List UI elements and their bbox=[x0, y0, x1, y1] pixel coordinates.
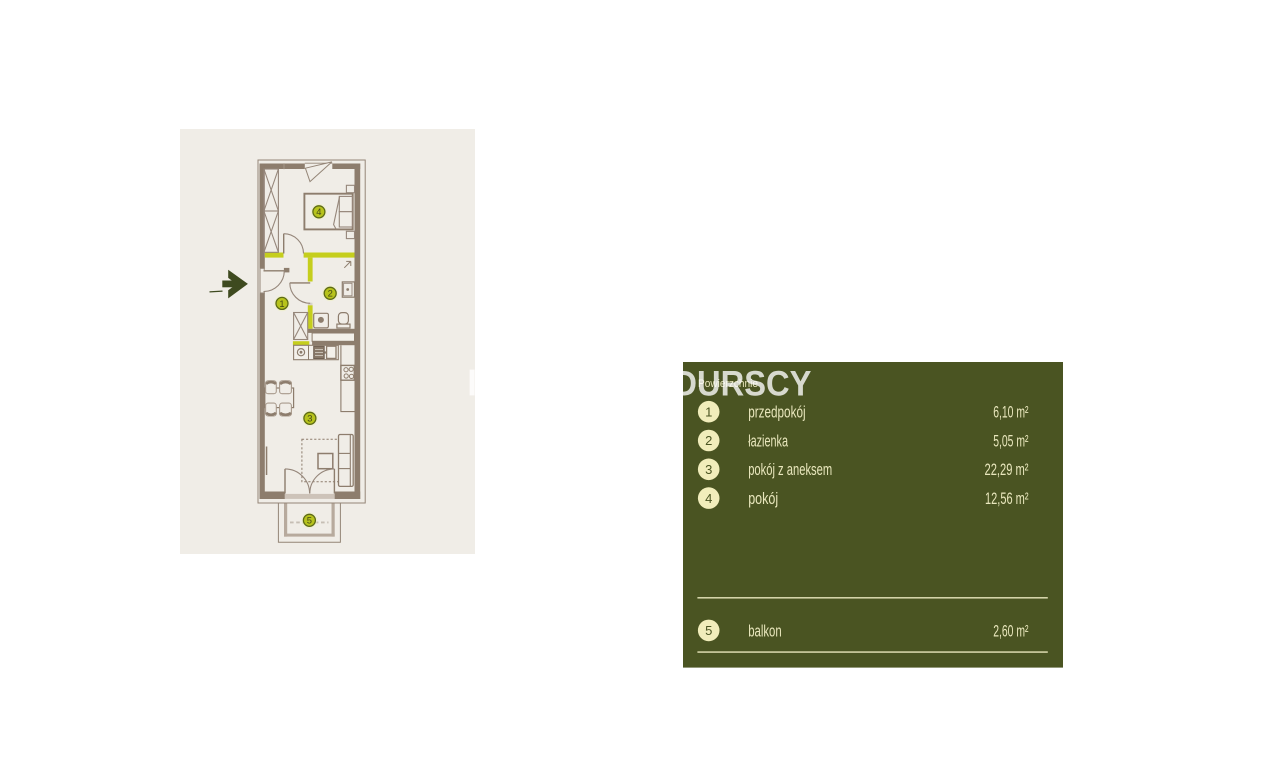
svg-text:5: 5 bbox=[705, 623, 712, 638]
svg-text:3: 3 bbox=[705, 462, 712, 477]
svg-text:pokój: pokój bbox=[748, 490, 778, 508]
svg-text:5: 5 bbox=[307, 515, 312, 526]
svg-text:4: 4 bbox=[705, 491, 712, 506]
svg-text:1: 1 bbox=[279, 298, 284, 309]
svg-text:balkon: balkon bbox=[748, 622, 782, 640]
svg-text:1: 1 bbox=[705, 404, 712, 419]
svg-text:6,10 m²: 6,10 m² bbox=[993, 404, 1029, 422]
svg-text:5,05 m²: 5,05 m² bbox=[993, 432, 1029, 450]
svg-text:22,29 m²: 22,29 m² bbox=[985, 461, 1029, 479]
svg-text:pokój z aneksem: pokój z aneksem bbox=[748, 461, 832, 479]
svg-text:2: 2 bbox=[705, 433, 712, 448]
svg-text:2: 2 bbox=[328, 287, 333, 298]
svg-text:12,56 m²: 12,56 m² bbox=[985, 490, 1029, 508]
svg-text:łazienka: łazienka bbox=[748, 432, 788, 450]
svg-text:2,60 m²: 2,60 m² bbox=[993, 622, 1029, 640]
svg-text:DURSCY: DURSCY bbox=[673, 363, 811, 403]
svg-text:3: 3 bbox=[307, 412, 312, 423]
svg-text:4: 4 bbox=[316, 206, 321, 217]
svg-text:przedpokój: przedpokój bbox=[748, 404, 805, 422]
